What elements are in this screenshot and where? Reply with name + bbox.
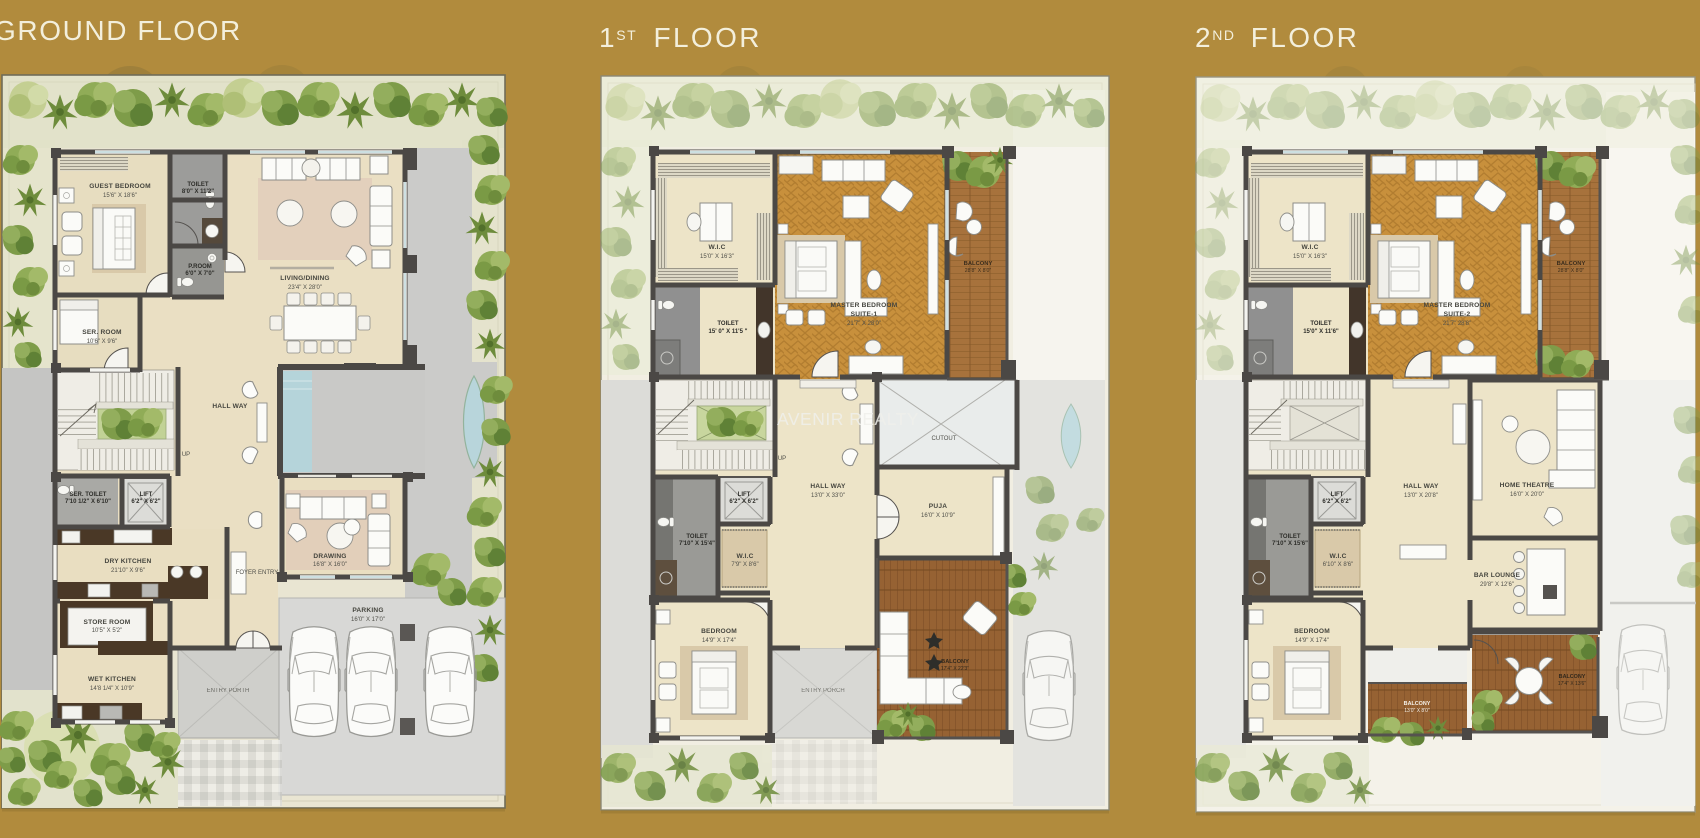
svg-text:LIFT: LIFT	[1331, 492, 1344, 498]
svg-text:15'6" X 18'6": 15'6" X 18'6"	[103, 193, 137, 199]
svg-text:10'5" X 5'2": 10'5" X 5'2"	[92, 628, 123, 634]
svg-text:WET KITCHEN: WET KITCHEN	[88, 676, 136, 683]
svg-text:28'8" X 8'0": 28'8" X 8'0"	[965, 268, 992, 274]
svg-text:10'6" X 9'6": 10'6" X 9'6"	[87, 339, 118, 345]
svg-text:LIFT: LIFT	[738, 492, 751, 498]
svg-text:6'2" X 6'2": 6'2" X 6'2"	[729, 499, 758, 505]
svg-text:13'0" X 33'0": 13'0" X 33'0"	[811, 493, 845, 499]
svg-text:FOYER ENTRY: FOYER ENTRY	[236, 570, 279, 576]
svg-text:29'8" X 12'6": 29'8" X 12'6"	[1480, 582, 1514, 588]
svg-text:HALL WAY: HALL WAY	[810, 483, 846, 490]
svg-text:ENTRY PORTH: ENTRY PORTH	[207, 688, 250, 694]
svg-text:LIFT: LIFT	[140, 492, 153, 498]
svg-text:PUJA: PUJA	[929, 503, 947, 510]
svg-text:15'0" X 16'3": 15'0" X 16'3"	[1293, 254, 1327, 260]
svg-text:BALCONY: BALCONY	[1559, 674, 1586, 680]
svg-text:TOILET: TOILET	[717, 321, 739, 327]
svg-text:6'2" X 6'2": 6'2" X 6'2"	[131, 499, 160, 505]
svg-text:21'7" X 28'0": 21'7" X 28'0"	[847, 321, 881, 327]
svg-text:13'0" X 20'8": 13'0" X 20'8"	[1404, 493, 1438, 499]
svg-text:14'9" X 17'4": 14'9" X 17'4"	[1295, 638, 1329, 644]
svg-text:STORE ROOM: STORE ROOM	[84, 619, 131, 626]
svg-text:UP: UP	[182, 452, 190, 458]
svg-text:15'0" X 16'3": 15'0" X 16'3"	[700, 254, 734, 260]
svg-text:BALCONY: BALCONY	[964, 261, 993, 267]
svg-text:W.I.C: W.I.C	[708, 244, 725, 251]
svg-text:21'7" 28'8": 21'7" 28'8"	[1443, 321, 1471, 327]
svg-text:TOILET: TOILET	[187, 182, 209, 188]
svg-text:SER. ROOM: SER. ROOM	[82, 329, 122, 336]
svg-text:P.ROOM: P.ROOM	[188, 264, 212, 270]
svg-text:BEDROOM: BEDROOM	[701, 628, 737, 635]
svg-text:BALCONY: BALCONY	[941, 659, 969, 665]
svg-text:13'0" X 8'0": 13'0" X 8'0"	[1404, 708, 1430, 714]
svg-text:HOME THEATRE: HOME THEATRE	[1500, 482, 1555, 489]
svg-text:21'10" X 9'6": 21'10" X 9'6"	[111, 568, 145, 574]
svg-text:BALCONY: BALCONY	[1557, 261, 1586, 267]
svg-text:TOILET: TOILET	[1279, 534, 1301, 540]
svg-text:16'0" X 17'0": 16'0" X 17'0"	[351, 617, 385, 623]
svg-text:14'9" X 17'4": 14'9" X 17'4"	[702, 638, 736, 644]
svg-text:W.I.C: W.I.C	[736, 553, 753, 560]
svg-text:17'4" X 13'6": 17'4" X 13'6"	[1558, 681, 1586, 687]
svg-text:HALL WAY: HALL WAY	[1403, 483, 1439, 490]
svg-text:PARKING: PARKING	[352, 607, 383, 614]
svg-text:14'8 1/4" X 10'9": 14'8 1/4" X 10'9"	[90, 686, 134, 692]
svg-text:7'10" X 15'4": 7'10" X 15'4"	[679, 541, 715, 547]
svg-text:17'4" X 22'3": 17'4" X 22'3"	[941, 666, 969, 672]
svg-text:CUTOUT: CUTOUT	[932, 436, 957, 442]
svg-text:28'8" X 8'0": 28'8" X 8'0"	[1558, 268, 1585, 274]
svg-text:16'0" X 10'9": 16'0" X 10'9"	[921, 513, 955, 519]
svg-text:23'4" X 28'0": 23'4" X 28'0"	[288, 285, 322, 291]
svg-text:7'10 1/2" X 6'10": 7'10 1/2" X 6'10"	[65, 499, 111, 505]
svg-text:SUITE-1: SUITE-1	[851, 311, 878, 318]
svg-text:MASTER BEDROOM: MASTER BEDROOM	[1424, 302, 1491, 309]
svg-text:8'0" X 11'2": 8'0" X 11'2"	[182, 189, 214, 195]
svg-text:DRAWING: DRAWING	[313, 553, 346, 560]
svg-text:W.I.C: W.I.C	[1329, 553, 1346, 560]
svg-text:GUEST BEDROOM: GUEST BEDROOM	[89, 183, 151, 190]
svg-text:15' 0" X 11'5 ": 15' 0" X 11'5 "	[709, 329, 748, 335]
svg-text:HALL WAY: HALL WAY	[212, 403, 248, 410]
svg-text:16'8" X 16'0": 16'8" X 16'0"	[313, 562, 347, 568]
svg-text:AVENIR REALTY: AVENIR REALTY	[777, 409, 919, 429]
svg-text:BEDROOM: BEDROOM	[1294, 628, 1330, 635]
svg-text:SUITE-2: SUITE-2	[1444, 311, 1471, 318]
svg-text:TOILET: TOILET	[1310, 321, 1332, 327]
svg-text:6'2" X 6'2": 6'2" X 6'2"	[1322, 499, 1351, 505]
svg-text:6'0" X 7'0": 6'0" X 7'0"	[185, 271, 214, 277]
svg-text:6'10" X 8'6": 6'10" X 8'6"	[1323, 562, 1354, 568]
svg-text:DRY KITCHEN: DRY KITCHEN	[105, 558, 152, 565]
svg-text:TOILET: TOILET	[686, 534, 708, 540]
svg-text:7'10" X 15'6": 7'10" X 15'6"	[1272, 541, 1308, 547]
svg-text:BALCONY: BALCONY	[1404, 701, 1431, 707]
svg-text:ENTRY PORCH: ENTRY PORCH	[801, 688, 844, 694]
svg-text:MASTER BEDROOM: MASTER BEDROOM	[831, 302, 898, 309]
svg-text:W.I.C: W.I.C	[1301, 244, 1318, 251]
svg-text:7'9" X 8'6": 7'9" X 8'6"	[731, 562, 758, 568]
svg-text:15'0" X 11'6": 15'0" X 11'6"	[1303, 329, 1339, 335]
svg-text:LIVING/DINING: LIVING/DINING	[280, 275, 330, 282]
svg-text:UP: UP	[778, 456, 786, 462]
svg-text:GROUND FLOOR: GROUND FLOOR	[0, 15, 242, 46]
svg-text:16'0" X 20'0": 16'0" X 20'0"	[1510, 492, 1544, 498]
svg-text:BAR LOUNGE: BAR LOUNGE	[1474, 572, 1521, 579]
svg-text:SER. TOILET: SER. TOILET	[70, 492, 107, 498]
